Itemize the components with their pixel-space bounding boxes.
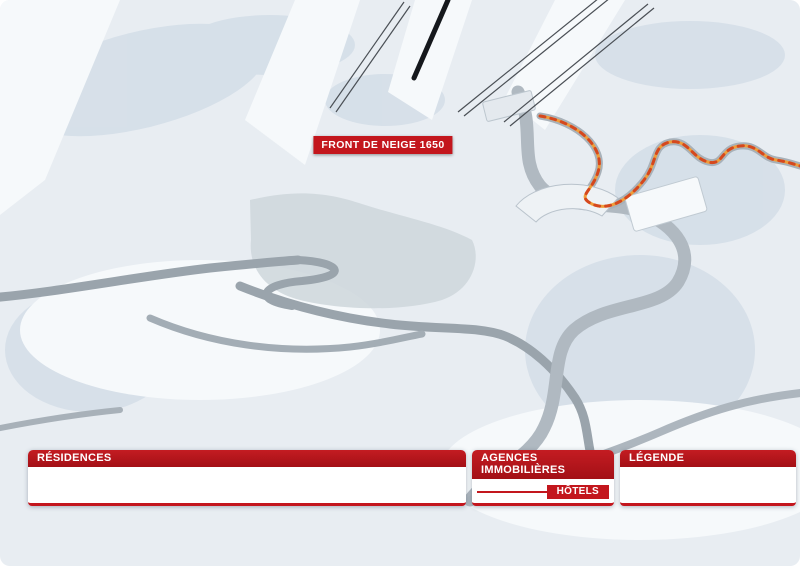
residences-panel: RÉSIDENCES [28, 450, 466, 506]
legend-title: LÉGENDE [620, 450, 796, 467]
legend-panel: LÉGENDE [620, 450, 796, 506]
front-de-neige-banner: FRONT DE NEIGE 1650 [313, 136, 452, 154]
hotels-title: HÔTELS [547, 485, 609, 499]
residences-title: RÉSIDENCES [28, 450, 466, 467]
legend-panels: RÉSIDENCES AGENCES IMMOBILIÈRES HÔTELS L… [28, 450, 796, 506]
agencies-title: AGENCES IMMOBILIÈRES [472, 450, 614, 479]
resort-map-page: FRONT DE NEIGE 1650 RÉSIDENCES AGENCES I… [0, 0, 800, 566]
hotels-divider: HÔTELS [477, 485, 609, 499]
agencies-hotels-panel: AGENCES IMMOBILIÈRES HÔTELS [472, 450, 614, 506]
